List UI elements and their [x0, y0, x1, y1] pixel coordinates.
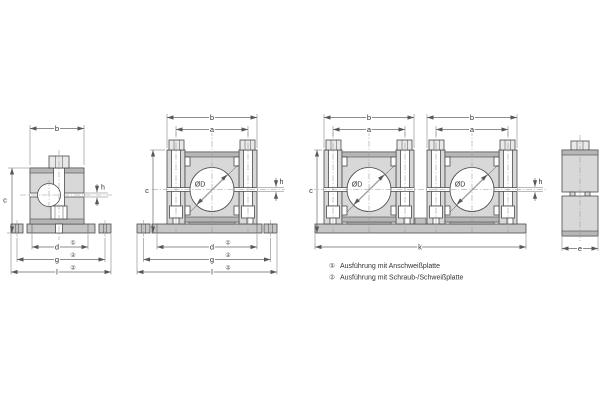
legend: ① Ausführung mit Anschweißplatte ② Ausfü…	[329, 262, 463, 282]
dim-c: c	[3, 168, 29, 233]
footnote-ref-screw-weld: ②	[225, 265, 231, 272]
legend-ref-1: ①	[329, 262, 335, 270]
legend-text-2: Ausführung mit Schraub-/Schweißplatte	[340, 275, 463, 282]
dim-label-c: c	[145, 186, 149, 195]
dim-e: e	[562, 237, 598, 253]
clamp-front-unit-right	[427, 130, 517, 235]
gap-tab	[585, 192, 590, 196]
dim-label-e: e	[578, 244, 582, 253]
base-plate	[152, 224, 262, 233]
view-profile: e	[562, 135, 598, 253]
clamp-front-unit	[167, 130, 257, 235]
dim-label-c: c	[3, 196, 7, 205]
view-side-single-clamp: b c h d ① g ②	[3, 124, 112, 277]
dim-label-k: k	[418, 243, 422, 252]
dim-label-g: g	[55, 255, 59, 264]
dim-d: d ①	[157, 234, 257, 252]
dim-label-h: h	[280, 179, 284, 186]
footnote-ref-screw-weld: ②	[225, 252, 231, 259]
dim-l: l ②	[137, 234, 277, 277]
dim-label-c: c	[309, 186, 313, 195]
dim-g: g ②	[17, 238, 105, 264]
junction-pad	[415, 218, 426, 224]
base-plate	[315, 224, 526, 233]
dim-g: g ②	[144, 238, 271, 264]
dim-d: d ①	[32, 234, 88, 252]
dim-label-h: h	[539, 179, 543, 186]
dim-l: l ②	[11, 234, 111, 277]
dim-label-b: b	[470, 113, 474, 122]
legend-text-1: Ausführung mit Anschweißplatte	[340, 263, 440, 270]
technical-drawing-canvas: ØD	[0, 0, 600, 400]
dim-label-g: g	[210, 255, 214, 264]
technical-drawing-page: ØD	[0, 0, 600, 400]
footnote-ref-screw-weld: ②	[70, 265, 76, 272]
footnote-ref-weld: ①	[70, 240, 75, 247]
dim-label-d: d	[210, 243, 214, 252]
footnote-ref-weld: ①	[225, 240, 230, 247]
dim-label-h: h	[101, 185, 105, 192]
view-front-single-clamp: b a c h d ①	[137, 113, 285, 277]
dim-label-b: b	[55, 124, 59, 133]
gap-tab	[570, 192, 575, 196]
dim-k: k	[315, 234, 526, 252]
dim-label-b: b	[210, 113, 214, 122]
dim-label-b: b	[367, 113, 371, 122]
clamp-front-unit-left	[324, 130, 414, 235]
dim-label-d: d	[55, 243, 59, 252]
view-front-double-clamp: b b a a c h	[309, 113, 546, 252]
clamp-body-bottom-band	[30, 219, 84, 224]
dim-c: c	[145, 150, 165, 233]
legend-ref-2: ②	[329, 274, 335, 282]
footnote-ref-screw-weld: ②	[70, 252, 76, 259]
dim-c: c	[309, 150, 322, 233]
